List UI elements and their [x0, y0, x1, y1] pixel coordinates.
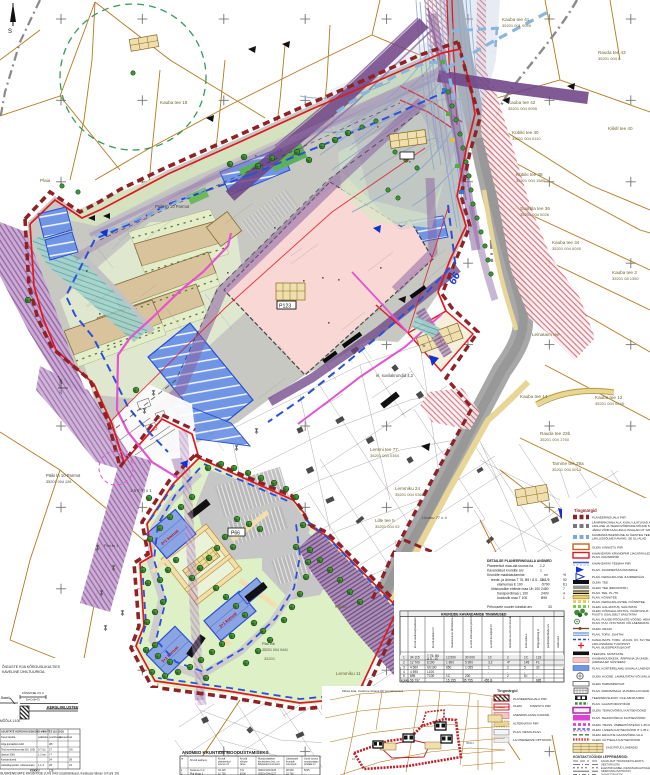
svg-text:Kauba tee 42: Kauba tee 42 [508, 100, 536, 105]
svg-text:Plaia: Plaia [40, 178, 51, 183]
svg-text:TEENINDUSHOOV. OLE-ABI RUUMID: TEENINDUSHOOV. OLE-ABI RUUMID [592, 696, 645, 700]
svg-text:1: 1 [403, 656, 405, 660]
svg-text:1-5 t(-7) x 1: 1-5 t(-7) x 1 [130, 488, 152, 493]
svg-text:ALTERNATIIV PIIR: ALTERNATIIV PIIR [513, 722, 539, 726]
svg-text:1: 1 [488, 665, 490, 669]
svg-text:5215: 5215 [304, 769, 310, 772]
svg-text:Rauda tee 43: Rauda tee 43 [598, 50, 626, 55]
svg-text:SUURENEVATE KRUNTIDE (ÜV) 043: SUURENEVATE KRUNTIDE (ÜV) 043 Lisatüümis… [0, 772, 119, 775]
svg-text:Marbi: Marbi [335, 604, 347, 609]
svg-text:suurim brutopind m²: suurim brutopind m² [489, 624, 493, 648]
svg-text:E100: E100 [427, 661, 435, 665]
svg-text:looduslik maa T 100: looduslik maa T 100 [497, 596, 527, 600]
svg-text:Kavandatud krundile arv: Kavandatud krundile arv [487, 569, 524, 573]
svg-text:ASUSTATE KORGHOUSSKOND MINUTE: ASUSTATE KORGHOUSSKOND MINUTES (1/1 S/O) [1, 729, 64, 733]
svg-text:korruselisus: korruselisus [524, 633, 528, 648]
svg-text:Lemmi tee 77: Lemmi tee 77 [370, 447, 398, 452]
svg-text:PLAN. JUURDEPÄÄS KRUNDILE: PLAN. JUURDEPÄÄS KRUNDILE [592, 568, 638, 572]
svg-text:liidetavad suurused: liidetavad suurused [258, 763, 280, 766]
svg-text:DETAILSE PLANEERINGUALA ANDMED: DETAILSE PLANEERINGUALA ANDMED [487, 559, 552, 563]
svg-text:Tamme tee 29a: Tamme tee 29a [552, 461, 584, 466]
svg-text:KAVANDATAV TEEMAA PIIR: KAVANDATAV TEEMAA PIIR [592, 562, 632, 566]
svg-text:1: 1 [540, 569, 542, 573]
svg-text:1 055: 1 055 [465, 665, 473, 669]
svg-text:35201 004 1760: 35201 004 1760 [540, 437, 570, 442]
svg-text:4 595: 4 595 [410, 670, 418, 674]
svg-text:35201 08 1350: 35201 08 1350 [612, 276, 639, 281]
svg-text:PLAN. KORTERELAMU (KAVALA LAIE: PLAN. KORTERELAMU (KAVALA LAIENDIT) [592, 667, 650, 671]
svg-text:KÕNNITEE 3,5 m: KÕNNITEE 3,5 m [22, 690, 45, 695]
svg-text:Kesa tänalla: Kesa tänalla [1, 735, 16, 739]
svg-text:Suurbla tee 36: Suurbla tee 36 [520, 206, 550, 211]
svg-text:Planeeritud maa-ala suurus ha: Planeeritud maa-ala suurus ha [487, 564, 533, 568]
svg-text:2450: 2450 [541, 587, 549, 591]
svg-text:parkimiskohtade arv: parkimiskohtade arv [546, 623, 550, 648]
svg-text:-: - [524, 670, 525, 674]
svg-text:Teid suvehöbusi-ala (60, 100): Teid suvehöbusi-ala (60, 100) [1, 748, 35, 752]
svg-text:35201 004 1580: 35201 004 1580 [516, 178, 546, 183]
svg-text:2: 2 [507, 665, 509, 669]
svg-text:35201 001 0049: 35201 001 0049 [502, 23, 532, 28]
svg-text:Üh100: Üh100 [427, 665, 437, 669]
svg-text:35201 004 03: 35201 004 03 [375, 524, 400, 529]
svg-text:10: 10 [488, 656, 492, 660]
svg-text:2: 2 [403, 661, 405, 665]
svg-text:34 115: 34 115 [410, 656, 420, 660]
svg-text:Kauba tee 34: Kauba tee 34 [552, 240, 580, 245]
svg-text:B95: B95 [541, 596, 547, 600]
svg-text:Rauda tee 23b: Rauda tee 23b [540, 431, 571, 436]
svg-text:35201 004 0441: 35201 004 0441 [262, 648, 288, 652]
svg-text:LIIKLUSSÕLME KAVAND. SE OLI AL: LIIKLUSSÕLME KAVAND. SE OLI ALAD [592, 536, 647, 541]
svg-text:OLEM. PARKIMISKOHT: OLEM. PARKIMISKOHT [592, 682, 625, 686]
svg-text:planeeritud: planeeritud [59, 735, 72, 739]
svg-text:Päiki tn 10 Parmot: Päiki tn 10 Parmot [155, 204, 190, 209]
svg-text:35201 004 126: 35201 004 126 [46, 480, 71, 484]
svg-text:P66: P66 [231, 531, 240, 537]
svg-text:Kauba tee 41: Kauba tee 41 [502, 17, 530, 22]
svg-text:krundi aadress/positsioon: krundi aadress/positsioon [413, 617, 417, 648]
svg-text:pindala m²: pindala m² [304, 763, 316, 766]
svg-text:P123: P123 [279, 304, 291, 310]
svg-text:LAI PRESERVE OPTSIOON: LAI PRESERVE OPTSIOON [513, 738, 551, 742]
svg-text:tarve: tarve [240, 763, 246, 766]
svg-text:Kauba tee 12: Kauba tee 12 [595, 395, 623, 400]
svg-text:elamumaa E 100: elamumaa E 100 [497, 583, 523, 587]
svg-text:7: 7 [563, 587, 565, 591]
svg-text:transpordimaa L 100: transpordimaa L 100 [497, 592, 528, 596]
svg-text:KAVELINE ÜHILTUURIGA.: KAVELINE ÜHILTUURIGA. [2, 670, 45, 674]
svg-text:35201 004 0045: 35201 004 0045 [595, 401, 625, 406]
svg-text:1,2: 1,2 [540, 564, 545, 568]
svg-text:PLAN. PARKIMISALA JA PARKLA KO: PLAN. PARKIMISALA JA PARKLA KOHAD [592, 689, 650, 693]
svg-text:35201 004 0110: 35201 004 0110 [512, 136, 541, 141]
svg-text:Kauba tee 18: Kauba tee 18 [160, 100, 188, 105]
svg-text:ASENDIPLAANIL KAVAND.: ASENDIPLAANIL KAVAND. [513, 713, 550, 717]
svg-text:13 500: 13 500 [446, 656, 456, 660]
svg-text:KANALISAT TRASSIDETOLERATS: KANALISAT TRASSIDETOLERATS [601, 759, 644, 763]
svg-text:Lille tee 5: Lille tee 5 [375, 518, 395, 523]
svg-text:%: % [563, 573, 566, 577]
svg-text:1,1-3: 1,1-3 [38, 763, 44, 767]
svg-text:teede- ja ärimaa T 75, B5 / Ä: teede- ja ärimaa T 75, B5 / Ä 5...10 [491, 578, 544, 582]
svg-text:-: - [507, 670, 508, 674]
svg-text:685: 685 [536, 678, 542, 682]
svg-text:Plai lnk: Plai lnk [262, 641, 275, 646]
svg-text:Kostandused: Kostandused [1, 758, 17, 762]
svg-text:PUISTU OSALISELT SÄILITATAV: PUISTU OSALISELT SÄILITATAV [592, 613, 637, 617]
svg-text:Baseil: Baseil [1, 696, 10, 700]
svg-text:Kübiki tee 40: Kübiki tee 40 [512, 130, 539, 135]
svg-text:OLEM. ERGUTIE GAASIVÕRGU ALA: OLEM. ERGUTIE GAASIVÕRGU ALA [592, 732, 643, 737]
svg-text:Jalavälgupanku, tellusannatu: Jalavälgupanku, tellusannatu [1, 763, 35, 767]
svg-text:2: 2 [507, 674, 509, 678]
svg-text:KINNISTU PIIR: KINNISTU PIIR [530, 704, 552, 708]
svg-text:OLEM. TEHNOVÕRGU KAITSEVÖÖND: OLEM. TEHNOVÕRGU KAITSEVÖÖND [592, 708, 647, 713]
svg-text:OLEM. TRASS. ÜMBERTÕSTETAV 1-3: OLEM. TRASS. ÜMBERTÕSTETAV 1-35 kV [592, 722, 650, 727]
svg-text:nr: nr [181, 758, 183, 761]
svg-text:Prihoosete suurim lubatud arv: Prihoosete suurim lubatud arv [487, 605, 532, 609]
svg-text:ühiskondike ehitiste maa Üh 10: ühiskondike ehitiste maa Üh 100 [491, 587, 540, 591]
svg-text:(lantus 300): (lantus 300) [1, 753, 15, 757]
svg-text:OLEM. LIVEESI KAITSEVÖÖND IT 1: OLEM. LIVEESI KAITSEVÖÖND IT 1-35 k [592, 728, 649, 732]
svg-text:(ÄRIMAA EP SÜSTEEM): (ÄRIMAA EP SÜSTEEM) [592, 660, 625, 664]
svg-text:OLEM. KINNISTU PIIR: OLEM. KINNISTU PIIR [592, 546, 624, 550]
svg-text:PLAN. GAASITORUSTIKUD: PLAN. GAASITORUSTIKUD [592, 702, 631, 706]
svg-text:4 560: 4 560 [410, 665, 418, 669]
svg-text:35 755: 35 755 [463, 678, 473, 682]
svg-text:1C: 1C [524, 656, 529, 660]
svg-text:maakasutuse sihtotstarve %: maakasutuse sihtotstarve % [450, 614, 454, 648]
svg-text:Mõisa küla, Keskuse tänava DP: Mõisa küla, Keskuse tänava DP kontaktvöö… [342, 689, 403, 693]
svg-text:Lemmiku 24: Lemmiku 24 [395, 486, 420, 491]
svg-text:-5790: -5790 [541, 583, 550, 587]
svg-text:JÄRGI VÕIB KAALUDA (LISAALAD O: JÄRGI VÕIB KAALUDA (LISAALAD OT SAID ÜM) [592, 527, 650, 532]
svg-text:38 r: 38 r [49, 742, 54, 746]
svg-text:PLAN. DETAILPLAN.: PLAN. DETAILPLAN. [513, 730, 542, 734]
svg-text:Kiikill tee 40: Kiikill tee 40 [608, 126, 633, 131]
svg-text:OLEM. TEE: OLEM. TEE [592, 581, 608, 585]
svg-text:30 000: 30 000 [465, 656, 475, 660]
svg-text:Krundi aadress: Krundi aadress [190, 759, 208, 762]
svg-text:GA: GA [69, 748, 73, 752]
svg-text:1 800: 1 800 [446, 661, 454, 665]
svg-text:1: 1 [563, 596, 565, 600]
svg-text:L-1 kor: L-1 kor [38, 753, 46, 757]
svg-text:suurim ehitusalune pind m²: suurim ehitusalune pind m² [469, 616, 473, 648]
svg-text:E1: E1 [563, 583, 567, 587]
svg-text:PLAN. KERGLIIKLUSTEE / KÕNNITE: PLAN. KERGLIIKLUSTEE / KÕNNITEE [592, 599, 645, 604]
svg-text:Päiki tn 10 Parmot: Päiki tn 10 Parmot [46, 473, 81, 478]
svg-text:15: 15 [352, 757, 356, 761]
svg-text:ÕIGUSTE RJA KÕRGUSLIKULTIES: ÕIGUSTE RJA KÕRGUSLIKULTIES [2, 664, 61, 669]
svg-text:35201: 35201 [264, 656, 276, 661]
svg-text:4: 4 [403, 670, 405, 674]
svg-text:Kauba tee 3: Kauba tee 3 [612, 270, 637, 275]
svg-text:krundi pindala m²: krundi pindala m² [431, 627, 435, 648]
svg-text:35201 004 0: 35201 004 0 [598, 56, 621, 61]
svg-text:PLAN. KÕNNITEE: PLAN. KÕNNITEE [592, 595, 617, 600]
svg-text:35201 004 0026: 35201 004 0026 [520, 212, 550, 217]
svg-text:TEEKATE. MUSTKATE: TEEKATE. MUSTKATE [592, 652, 623, 656]
svg-text:33: 33 [548, 605, 552, 609]
svg-text:455 B: 455 B [484, 678, 492, 682]
svg-text:35201 004 0354: 35201 004 0354 [370, 453, 400, 458]
svg-text:35201: 35201 [466, 741, 474, 745]
svg-text:hoonete suurim arv krundil: hoonete suurim arv krundil [508, 616, 512, 648]
svg-text:suurus m²: suurus m² [218, 763, 229, 766]
svg-text:VEETORUSTIK: VEETORUSTIK [601, 762, 620, 766]
svg-text:8,l: 8,l [524, 674, 528, 678]
svg-text:35201 004 0363: 35201 004 0363 [395, 492, 425, 497]
svg-text:el. suvilakrundid 4,2: el. suvilakrundid 4,2 [376, 373, 414, 378]
svg-text:240V: 240V [541, 592, 550, 596]
svg-text:KERGLIIKLUSTEE: KERGLIIKLUSTEE [47, 706, 79, 710]
svg-text:PLAN. KRUNDIPIIR: PLAN. KRUNDIPIIR [592, 555, 620, 559]
svg-text:3: 3 [403, 665, 405, 669]
svg-text:KONTAKTVÖÖNDI LEPPEMÄRGID:: KONTAKTVÖÖNDI LEPPEMÄRGID: [573, 755, 628, 759]
svg-text:ELEKTRIKAABEL (KESK/MADALPINGE: ELEKTRIKAABEL (KESK/MADALPINGE) [601, 766, 650, 770]
svg-text:kokku: kokku [401, 678, 410, 682]
svg-text:35201 004 0040: 35201 004 0040 [552, 246, 582, 251]
svg-text:56 797: 56 797 [410, 678, 420, 682]
svg-text:92: 92 [563, 578, 567, 582]
svg-text:L100: L100 [427, 670, 434, 674]
svg-text:kõrguspiirang m: kõrguspiirang m [536, 628, 540, 648]
svg-text:märkused: märkused [556, 636, 560, 648]
svg-text:S: S [8, 29, 12, 35]
svg-text:12 700: 12 700 [410, 661, 420, 665]
svg-text:123: 123 [536, 656, 542, 660]
svg-text:-: - [488, 670, 489, 674]
svg-text:5-7 t(i): 5-7 t(i) [38, 748, 46, 752]
svg-text:PLANEERINGUALA PIIR: PLANEERINGUALA PIIR [592, 516, 627, 520]
svg-text:4: 4 [563, 592, 565, 596]
svg-text:Krundite maakasutamine: Krundite maakasutamine [487, 573, 525, 577]
svg-text:PLAN. BUSSIPEATUSKOHT: PLAN. BUSSIPEATUSKOHT [592, 646, 631, 650]
svg-text:PLANEERINGUALA PIIR: PLANEERINGUALA PIIR [513, 697, 548, 701]
svg-text:35201 004 0013: 35201 004 0013 [552, 467, 582, 472]
svg-text:5: 5 [524, 665, 526, 669]
svg-text:PLAN. TORU. JUHITAV: PLAN. TORU. JUHITAV [592, 633, 624, 637]
svg-text:Kauba tee 14: Kauba tee 14 [520, 394, 548, 399]
svg-text:OLEM. TEE (REKONSTR.): OLEM. TEE (REKONSTR.) [592, 586, 628, 590]
svg-text:Kübiki tee 38: Kübiki tee 38 [516, 172, 543, 177]
svg-text:341/5: 341/5 [541, 578, 550, 582]
svg-text:Tingmärgid: Tingmärgid [497, 689, 518, 693]
svg-text:T100: T100 [427, 674, 434, 678]
svg-text:OLEM.: OLEM. [513, 704, 523, 708]
svg-text:Ärija kontaktkrundid: Ärija kontaktkrundid [1, 742, 24, 746]
svg-text:PLAN. PUU. ISTUTATAV VÕI ASEND: PLAN. PUU. ISTUTATAV VÕI ASENDATAV [592, 620, 649, 625]
svg-text:Tingmärgid: Tingmärgid [574, 508, 597, 513]
svg-text:Plai tn 1: Plai tn 1 [104, 543, 119, 548]
svg-text:Liivaku 77 n 4: Liivaku 77 n 4 [422, 515, 447, 520]
svg-text:2: 2 [507, 656, 509, 660]
svg-text:PLAN. KERGLIIKLUSE JUURDEPÄÄS: PLAN. KERGLIIKLUSE JUURDEPÄÄS [592, 575, 644, 579]
svg-text:PLAN. TEE, PL./TN: PLAN. TEE, PL./TN [592, 591, 618, 595]
svg-text:Lemmiku 11: Lemmiku 11 [336, 671, 361, 676]
svg-text:F1: F1 [536, 661, 540, 665]
svg-text:145: 145 [524, 661, 530, 665]
svg-text:PLAN. TEHNOVÕRGU KAITSEVÖÖND: PLAN. TEHNOVÕRGU KAITSEVÖÖND [592, 715, 646, 720]
svg-text:KASUTATUD LÜHENDID: KASUTATUD LÜHENDID [606, 746, 638, 750]
svg-text:5 900: 5 900 [465, 661, 473, 665]
svg-text:ANDMED KRUNTIDE MOODUSTAMISEKS: ANDMED KRUNTIDE MOODUSTAMISEKS [182, 750, 269, 755]
svg-text:suurused: suurused [286, 763, 297, 766]
svg-text:15 155: 15 155 [446, 678, 456, 682]
svg-text:OLEM. KÜTTEALA KAITSEVÖÖND: OLEM. KÜTTEALA KAITSEVÖÖND [592, 738, 641, 742]
svg-text:32: 32 [536, 665, 540, 669]
svg-text:35201 004 0055: 35201 004 0055 [508, 106, 538, 111]
svg-text:Er=Cr:B=75: Er=Cr:B=75 [26, 698, 40, 702]
svg-text:pakkides: pakkides [38, 735, 49, 739]
svg-text:3.2: 3.2 [488, 661, 493, 665]
svg-text:Leinataim tee: Leinataim tee [532, 332, 560, 337]
svg-text:OLEM. KRAAV: OLEM. KRAAV [592, 627, 612, 631]
svg-text:OLEM. HOONE. LAMMUTATAV VÕI SÄ: OLEM. HOONE. LAMMUTATAV VÕI SÄILIV [592, 674, 650, 679]
svg-text:MÕÕLA 1:100: MÕÕLA 1:100 [0, 718, 20, 723]
svg-text:650: 650 [446, 665, 452, 669]
